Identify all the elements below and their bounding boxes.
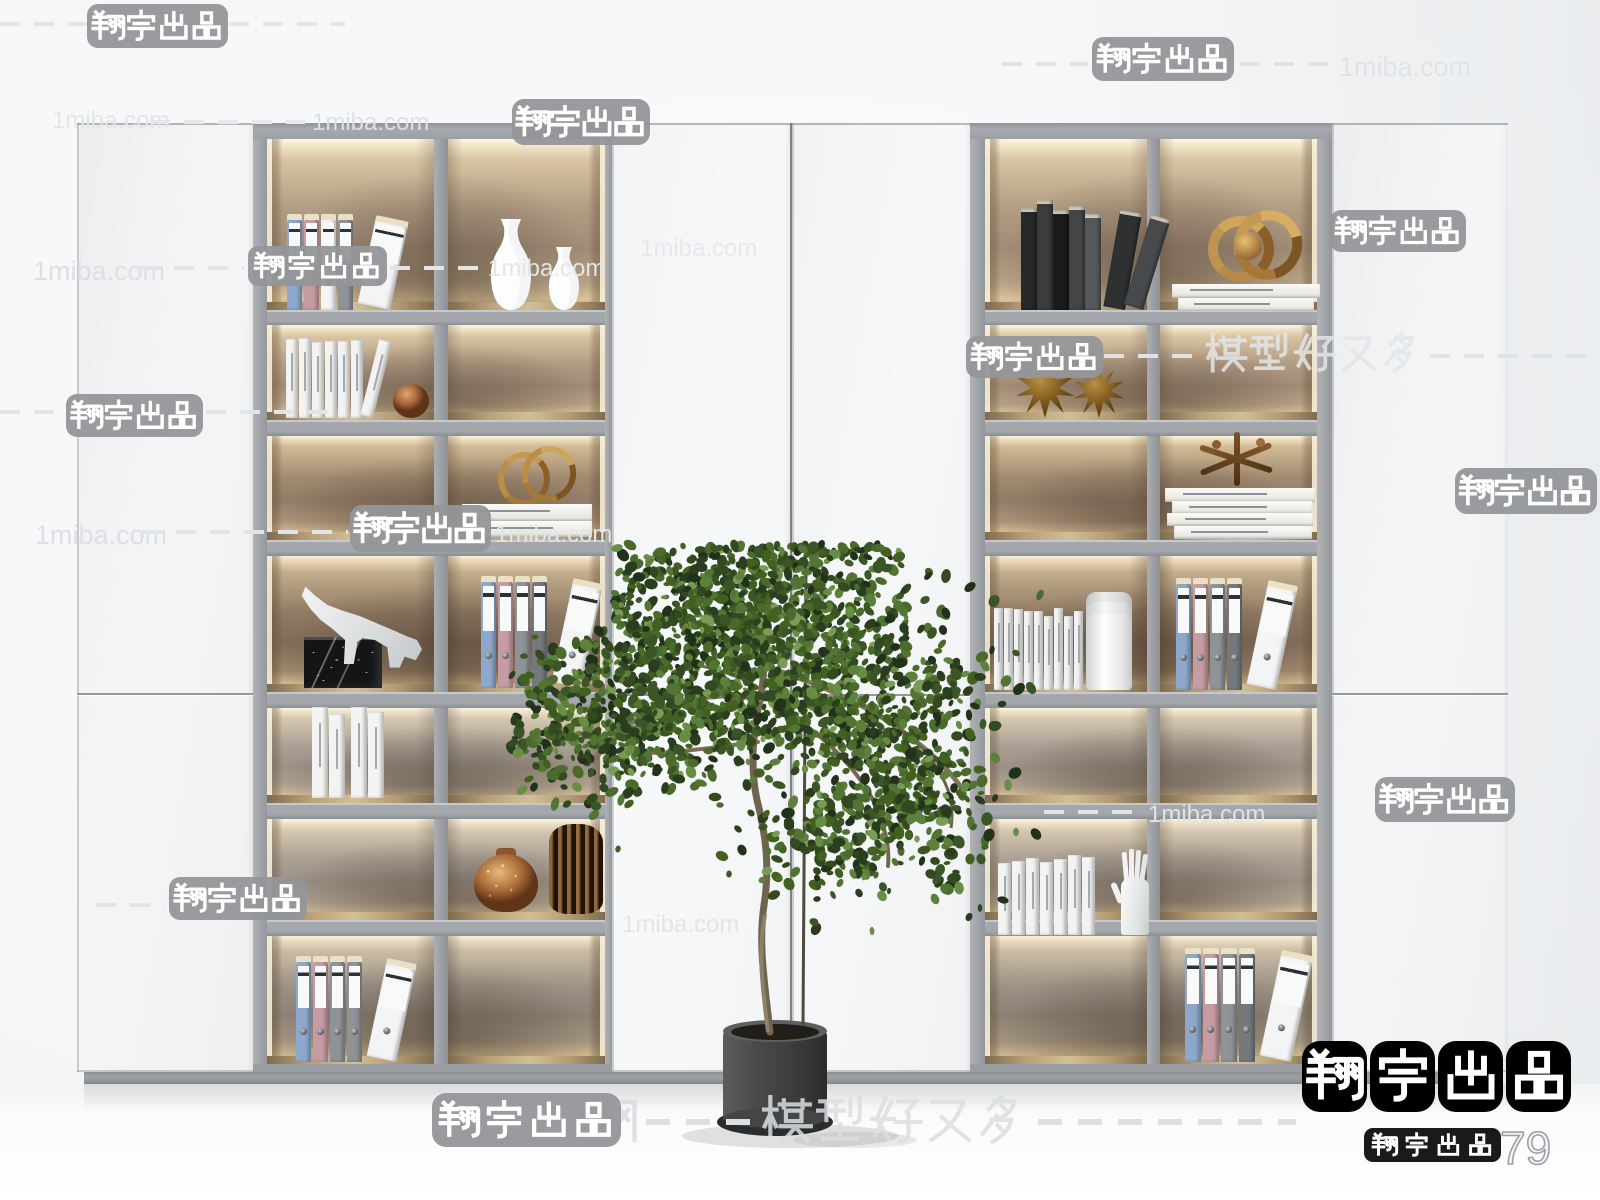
svg-text:1miba.com: 1miba.com (33, 256, 165, 286)
svg-text:1miba.com: 1miba.com (1339, 52, 1471, 82)
svg-text:1miba.com: 1miba.com (622, 911, 739, 938)
svg-text:1miba.com: 1miba.com (35, 520, 167, 550)
svg-text:79: 79 (1500, 1122, 1551, 1174)
svg-text:1miba.com: 1miba.com (312, 109, 429, 136)
svg-text:1miba.com: 1miba.com (1148, 801, 1265, 828)
svg-text:1miba.com: 1miba.com (640, 235, 757, 262)
svg-text:1miba.com: 1miba.com (495, 521, 612, 548)
svg-text:1miba.com: 1miba.com (488, 255, 605, 282)
